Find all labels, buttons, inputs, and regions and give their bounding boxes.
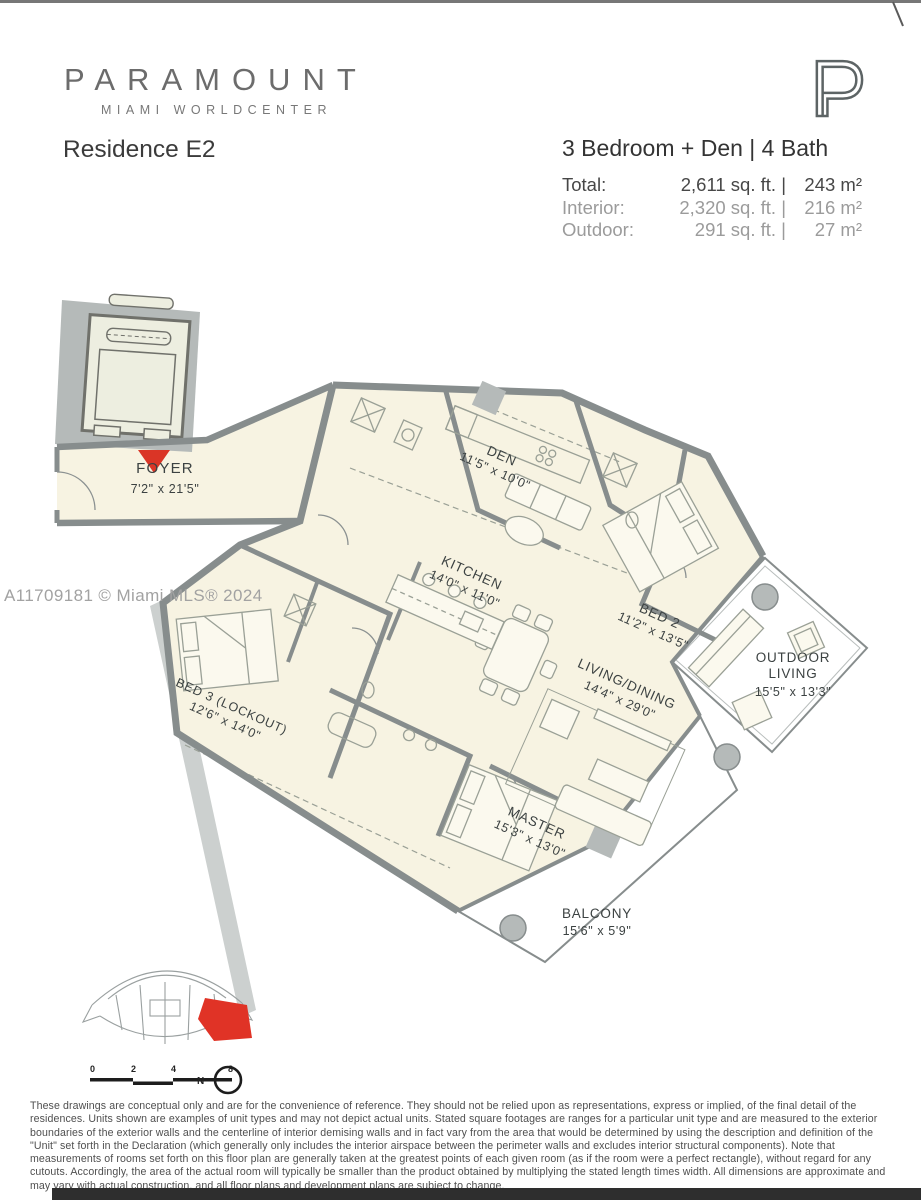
- scan-edge-bottom: [52, 1188, 921, 1200]
- svg-text:7'2" x 21'5": 7'2" x 21'5": [131, 482, 200, 496]
- svg-text:N: N: [197, 1076, 204, 1087]
- svg-text:15'5" x 13'3": 15'5" x 13'3": [755, 685, 831, 699]
- bed3-furniture: [176, 609, 278, 691]
- floorplan-page: PARAMOUNT MIAMI WORLDCENTER Residence E2…: [0, 0, 921, 1200]
- legal-disclaimer: These drawings are conceptual only and a…: [30, 1100, 890, 1193]
- elevator-lobby: [55, 293, 200, 452]
- svg-text:2: 2: [131, 1064, 136, 1074]
- svg-text:BALCONY: BALCONY: [562, 906, 632, 921]
- scan-mark: [893, 2, 903, 26]
- svg-text:4: 4: [171, 1064, 176, 1074]
- mls-watermark: A11709181 © Miami MLS® 2024: [4, 586, 263, 605]
- scale-bar: 0 2 4 8: [90, 1064, 233, 1085]
- floorplan-drawing: FOYER 7'2" x 21'5" DEN 11'5" x 10'0" KIT…: [0, 0, 921, 1200]
- svg-text:15'6" x 5'9": 15'6" x 5'9": [563, 924, 632, 938]
- north-arrow: N: [197, 1067, 241, 1093]
- svg-text:LIVING: LIVING: [768, 666, 817, 681]
- svg-text:0: 0: [90, 1064, 95, 1074]
- svg-text:OUTDOOR: OUTDOOR: [756, 650, 831, 665]
- keyplan: [83, 971, 252, 1044]
- svg-text:FOYER: FOYER: [136, 460, 194, 477]
